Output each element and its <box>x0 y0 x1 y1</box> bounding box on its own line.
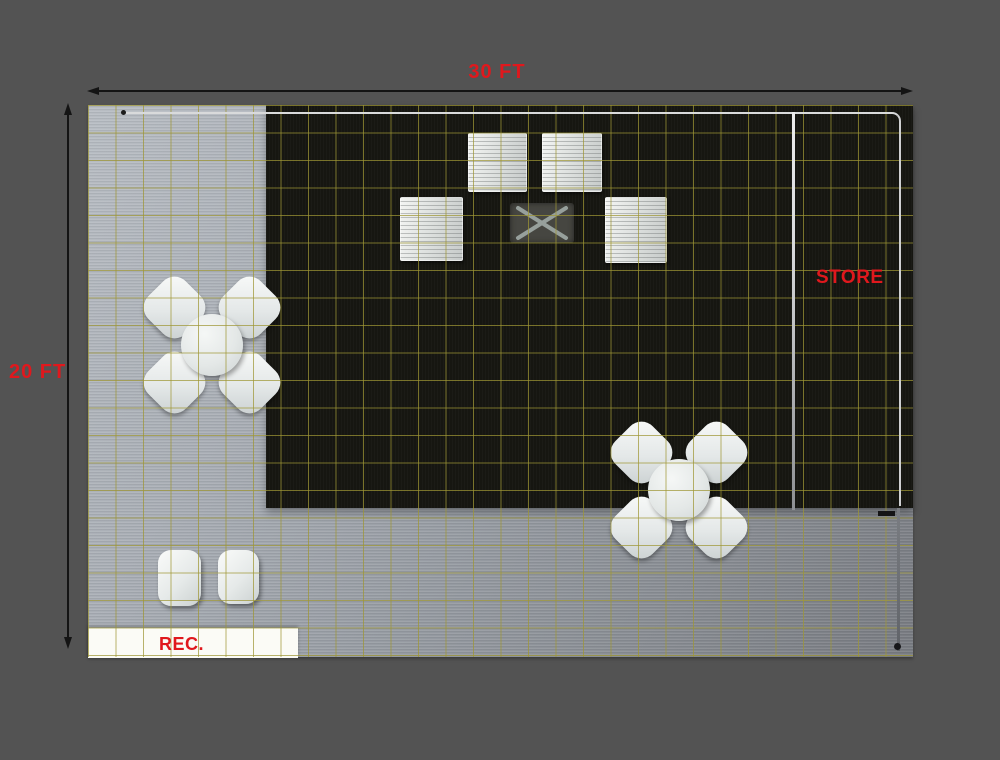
stool <box>158 550 201 606</box>
reception-label: REC. <box>159 634 204 655</box>
floor-area: STORE REC. <box>88 105 913 657</box>
stool <box>218 550 259 604</box>
width-dimension-label: 30 FT <box>437 61 557 84</box>
dimension-arrow-up-icon <box>64 103 72 115</box>
store-label: STORE <box>816 267 884 289</box>
floor-plan-canvas: 30 FT 20 FT <box>0 0 1000 760</box>
depth-dimension-label: 20 FT <box>9 361 66 384</box>
dimension-arrow-right-icon <box>901 87 913 95</box>
dimension-arrow-left-icon <box>87 87 99 95</box>
wall-foot-mark <box>894 643 901 650</box>
left-dimension-line <box>67 113 69 639</box>
booth-wall-frame <box>125 112 901 506</box>
wall-start-cap <box>121 110 126 115</box>
store-partition-wall <box>792 112 795 510</box>
store-wall-lower-edge <box>897 508 900 651</box>
dimension-arrow-down-icon <box>64 637 72 649</box>
top-dimension-line <box>97 90 903 92</box>
store-corner-mark <box>878 511 895 516</box>
